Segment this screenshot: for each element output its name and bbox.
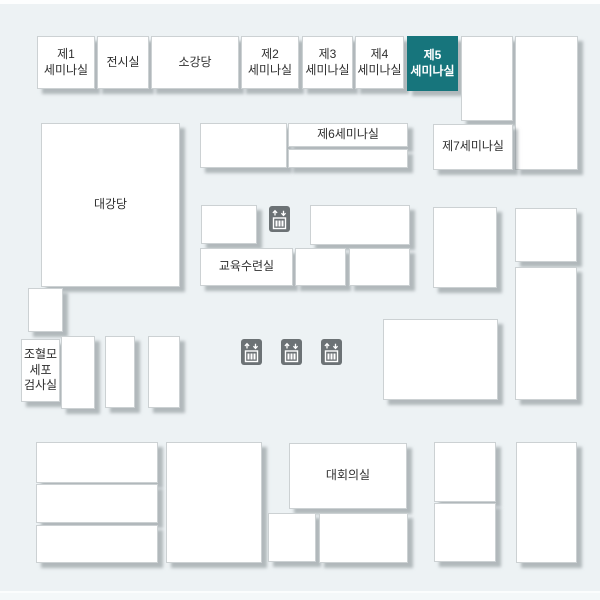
room-grand-auditorium: 대강당 (41, 123, 180, 287)
room-education-training-room: 교육수련실 (200, 248, 293, 286)
room-label: 대강당 (94, 197, 127, 213)
room-label: 제5 세미나실 (410, 48, 454, 79)
room-seminar-4: 제4 세미나실 (355, 36, 404, 89)
room-exhibition-hall: 전시실 (97, 36, 149, 89)
room-blank-g2 (105, 336, 135, 408)
room-stem-cell-lab: 조혈모 세포 검사실 (21, 339, 60, 402)
room-blank-j1 (166, 442, 262, 563)
room-label: 대회의실 (326, 468, 370, 484)
room-seminar-3: 제3 세미나실 (302, 36, 353, 89)
elevator-icon (281, 339, 302, 365)
room-label: 제3 세미나실 (305, 47, 349, 78)
room-blank-d1 (433, 207, 497, 288)
room-blank-a2 (515, 36, 578, 170)
room-seminar-2: 제2 세미나실 (241, 36, 299, 89)
floor-map: 제1 세미나실전시실소강당제2 세미나실제3 세미나실제4 세미나실제5 세미나… (0, 0, 600, 600)
room-blank-c4 (349, 248, 410, 286)
room-blank-l2 (434, 503, 496, 562)
elevator-icon (241, 339, 262, 365)
room-seminar-6: 제6세미나실 (288, 123, 408, 147)
room-label: 소강당 (178, 55, 211, 71)
room-blank-l3 (516, 442, 577, 563)
room-seminar-1: 제1 세미나실 (37, 36, 95, 89)
room-seminar-7: 제7세미나실 (433, 124, 513, 170)
room-blank-g3 (148, 336, 180, 408)
room-label: 제1 세미나실 (44, 47, 88, 78)
room-blank-a1 (461, 36, 513, 121)
room-blank-e2 (515, 267, 577, 400)
room-blank-g1 (61, 336, 95, 409)
room-blank-h1 (383, 319, 498, 400)
elevator-icon (321, 339, 342, 365)
room-label: 전시실 (106, 55, 139, 71)
room-blank-l1 (434, 442, 496, 502)
room-label: 제7세미나실 (442, 139, 504, 155)
room-conference-room: 대회의실 (289, 443, 407, 509)
bottom-border (0, 591, 600, 600)
room-seminar-5: 제5 세미나실 (407, 36, 458, 91)
room-blank-i2 (36, 484, 158, 523)
top-border (0, 0, 600, 4)
room-label: 제2 세미나실 (248, 47, 292, 78)
room-small-auditorium: 소강당 (151, 36, 239, 89)
room-blank-b1 (200, 123, 287, 168)
elevator-icon (269, 206, 290, 232)
room-blank-k2 (319, 513, 408, 563)
room-label: 제4 세미나실 (357, 47, 401, 78)
room-blank-f1 (28, 288, 63, 332)
room-blank-b2 (288, 149, 408, 168)
room-label: 조혈모 세포 검사실 (24, 347, 57, 394)
room-blank-i1 (36, 442, 158, 483)
room-blank-i3 (36, 525, 158, 563)
room-blank-e1 (515, 208, 577, 262)
room-label: 제6세미나실 (317, 127, 379, 143)
room-blank-c3 (295, 248, 346, 286)
room-blank-k1 (268, 513, 316, 562)
room-blank-c2 (310, 205, 410, 245)
room-blank-c1 (201, 205, 257, 244)
room-label: 교육수련실 (219, 259, 274, 275)
